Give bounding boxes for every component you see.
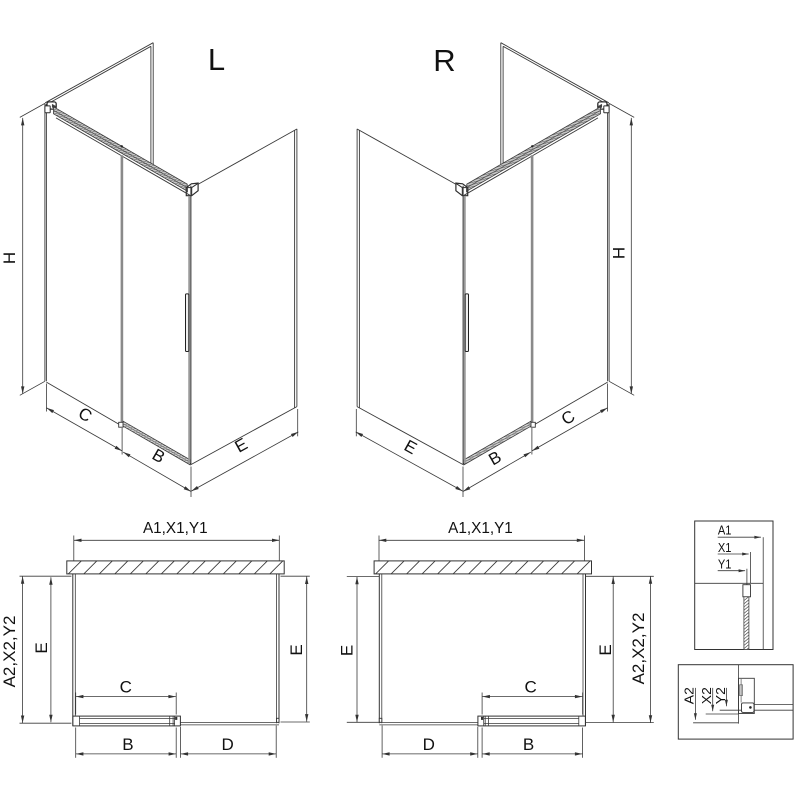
svg-text:H: H (610, 247, 629, 259)
svg-text:C: C (525, 677, 537, 696)
svg-text:A1,X1,Y1: A1,X1,Y1 (143, 520, 208, 537)
svg-text:A1: A1 (718, 523, 732, 538)
svg-text:L: L (208, 42, 225, 77)
svg-text:E: E (32, 642, 51, 653)
svg-text:B: B (523, 735, 534, 754)
svg-text:A2,X2,Y2: A2,X2,Y2 (629, 613, 648, 685)
svg-text:D: D (222, 735, 234, 754)
svg-text:E: E (338, 645, 357, 656)
svg-text:A2: A2 (681, 687, 696, 704)
svg-text:D: D (423, 735, 435, 754)
svg-text:B: B (122, 735, 133, 754)
svg-text:X2: X2 (699, 687, 714, 704)
svg-text:A2,X2,Y2: A2,X2,Y2 (0, 616, 19, 688)
svg-text:X1: X1 (718, 540, 732, 555)
svg-text:A1,X1,Y1: A1,X1,Y1 (448, 520, 513, 537)
svg-text:Y1: Y1 (718, 557, 732, 572)
svg-text:C: C (120, 677, 132, 696)
svg-text:E: E (287, 644, 306, 655)
svg-text:E: E (596, 644, 615, 655)
svg-text:H: H (0, 252, 19, 264)
svg-text:R: R (433, 43, 455, 78)
